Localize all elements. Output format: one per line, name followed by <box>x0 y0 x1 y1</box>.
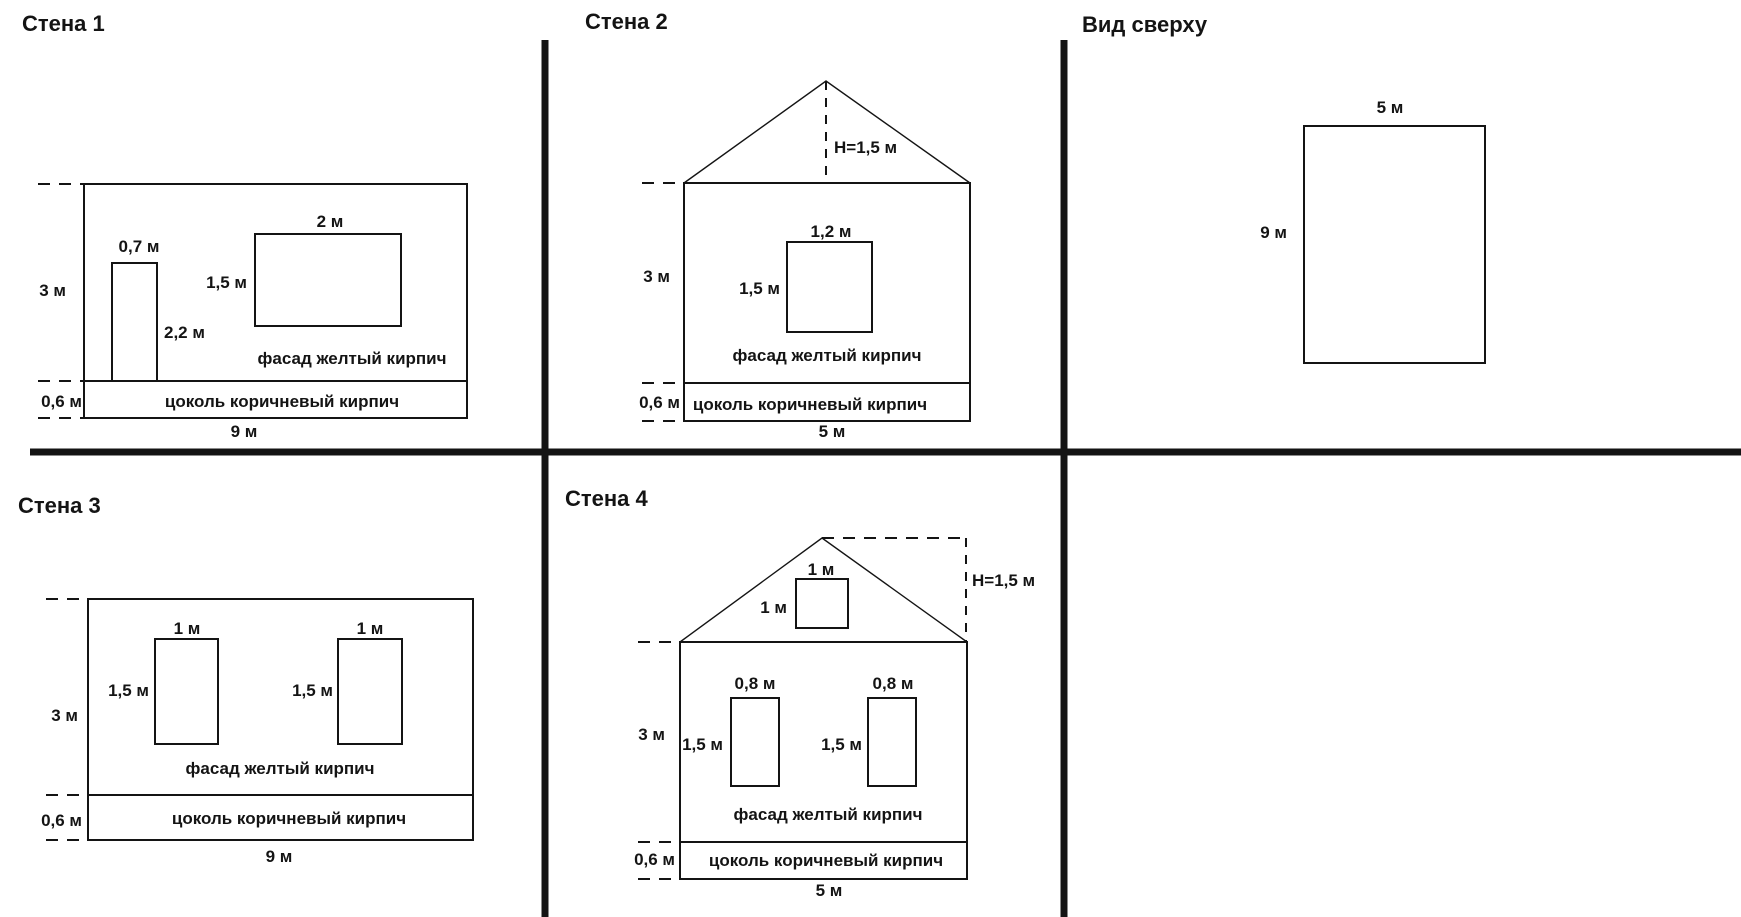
wall2-title: Стена 2 <box>585 9 668 34</box>
wall4-width-label: 5 м <box>816 881 843 900</box>
wall3-plinth-note: цоколь коричневый кирпич <box>172 809 406 828</box>
wall4-window-1 <box>731 698 779 786</box>
wall4-window1-width-label: 0,8 м <box>735 674 776 693</box>
wall1-window-height-label: 1,5 м <box>206 273 247 292</box>
wall4-window-2 <box>868 698 916 786</box>
panel-wall1: Стена 1 0,7 м 2,2 м 2 м 1,5 м 3 м фасад … <box>22 11 467 441</box>
wall2-height-label: 3 м <box>643 267 670 286</box>
wall3-window2-height-label: 1,5 м <box>292 681 333 700</box>
wall1-door-width-label: 0,7 м <box>119 237 160 256</box>
wall2-facade-note: фасад желтый кирпич <box>733 346 922 365</box>
wall2-roof-height-label: H=1,5 м <box>834 138 897 157</box>
wall3-title: Стена 3 <box>18 493 101 518</box>
blueprint-page: Стена 1 0,7 м 2,2 м 2 м 1,5 м 3 м фасад … <box>0 0 1741 917</box>
wall4-roof-height-label: H=1,5 м <box>972 571 1035 590</box>
top-view-outline <box>1304 126 1485 363</box>
wall2-plinth-height-label: 0,6 м <box>639 393 680 412</box>
blueprint-svg: Стена 1 0,7 м 2,2 м 2 м 1,5 м 3 м фасад … <box>0 0 1741 917</box>
wall1-door <box>112 263 157 381</box>
wall4-window1-height-label: 1,5 м <box>682 735 723 754</box>
wall3-facade-note: фасад желтый кирпич <box>186 759 375 778</box>
wall2-window-height-label: 1,5 м <box>739 279 780 298</box>
panel-wall2: Стена 2 H=1,5 м 1,2 м 1,5 м 3 м фасад же… <box>585 9 970 441</box>
wall4-title: Стена 4 <box>565 486 649 511</box>
wall4-window2-height-label: 1,5 м <box>821 735 862 754</box>
panel-top-view: Вид сверху 5 м 9 м <box>1082 12 1485 363</box>
wall3-width-label: 9 м <box>266 847 293 866</box>
wall4-gable-window-height-label: 1 м <box>760 598 787 617</box>
panel-wall3: Стена 3 1 м 1 м 1,5 м 1,5 м 3 м фасад же… <box>18 493 473 866</box>
panel-wall4: Стена 4 H=1,5 м 1 м 1 м 0,8 м 0,8 м 1,5 … <box>565 486 1035 900</box>
wall3-window-1 <box>155 639 218 744</box>
wall4-roof <box>680 538 967 642</box>
wall1-facade-note: фасад желтый кирпич <box>258 349 447 368</box>
wall3-plinth-height-label: 0,6 м <box>41 811 82 830</box>
wall1-plinth-note: цоколь коричневый кирпич <box>165 392 399 411</box>
wall4-window2-width-label: 0,8 м <box>873 674 914 693</box>
wall2-width-label: 5 м <box>819 422 846 441</box>
wall3-height-label: 3 м <box>51 706 78 725</box>
wall4-plinth-height-label: 0,6 м <box>634 850 675 869</box>
wall4-plinth-note: цоколь коричневый кирпич <box>709 851 943 870</box>
wall1-plinth-height-label: 0,6 м <box>41 392 82 411</box>
wall4-facade-note: фасад желтый кирпич <box>734 805 923 824</box>
wall3-window2-width-label: 1 м <box>357 619 384 638</box>
wall2-plinth-note: цоколь коричневый кирпич <box>693 395 927 414</box>
wall2-window <box>787 242 872 332</box>
top-view-depth-label: 9 м <box>1260 223 1287 242</box>
wall4-height-label: 3 м <box>638 725 665 744</box>
wall1-window <box>255 234 401 326</box>
top-view-width-label: 5 м <box>1377 98 1404 117</box>
wall4-gable-window <box>796 579 848 628</box>
wall1-height-label: 3 м <box>39 281 66 300</box>
wall1-window-width-label: 2 м <box>317 212 344 231</box>
wall3-window1-width-label: 1 м <box>174 619 201 638</box>
wall1-title: Стена 1 <box>22 11 105 36</box>
wall2-window-width-label: 1,2 м <box>811 222 852 241</box>
wall1-width-label: 9 м <box>231 422 258 441</box>
wall3-window1-height-label: 1,5 м <box>108 681 149 700</box>
wall3-window-2 <box>338 639 402 744</box>
top-view-title: Вид сверху <box>1082 12 1208 37</box>
wall1-door-height-label: 2,2 м <box>164 323 205 342</box>
wall4-gable-window-width-label: 1 м <box>808 560 835 579</box>
